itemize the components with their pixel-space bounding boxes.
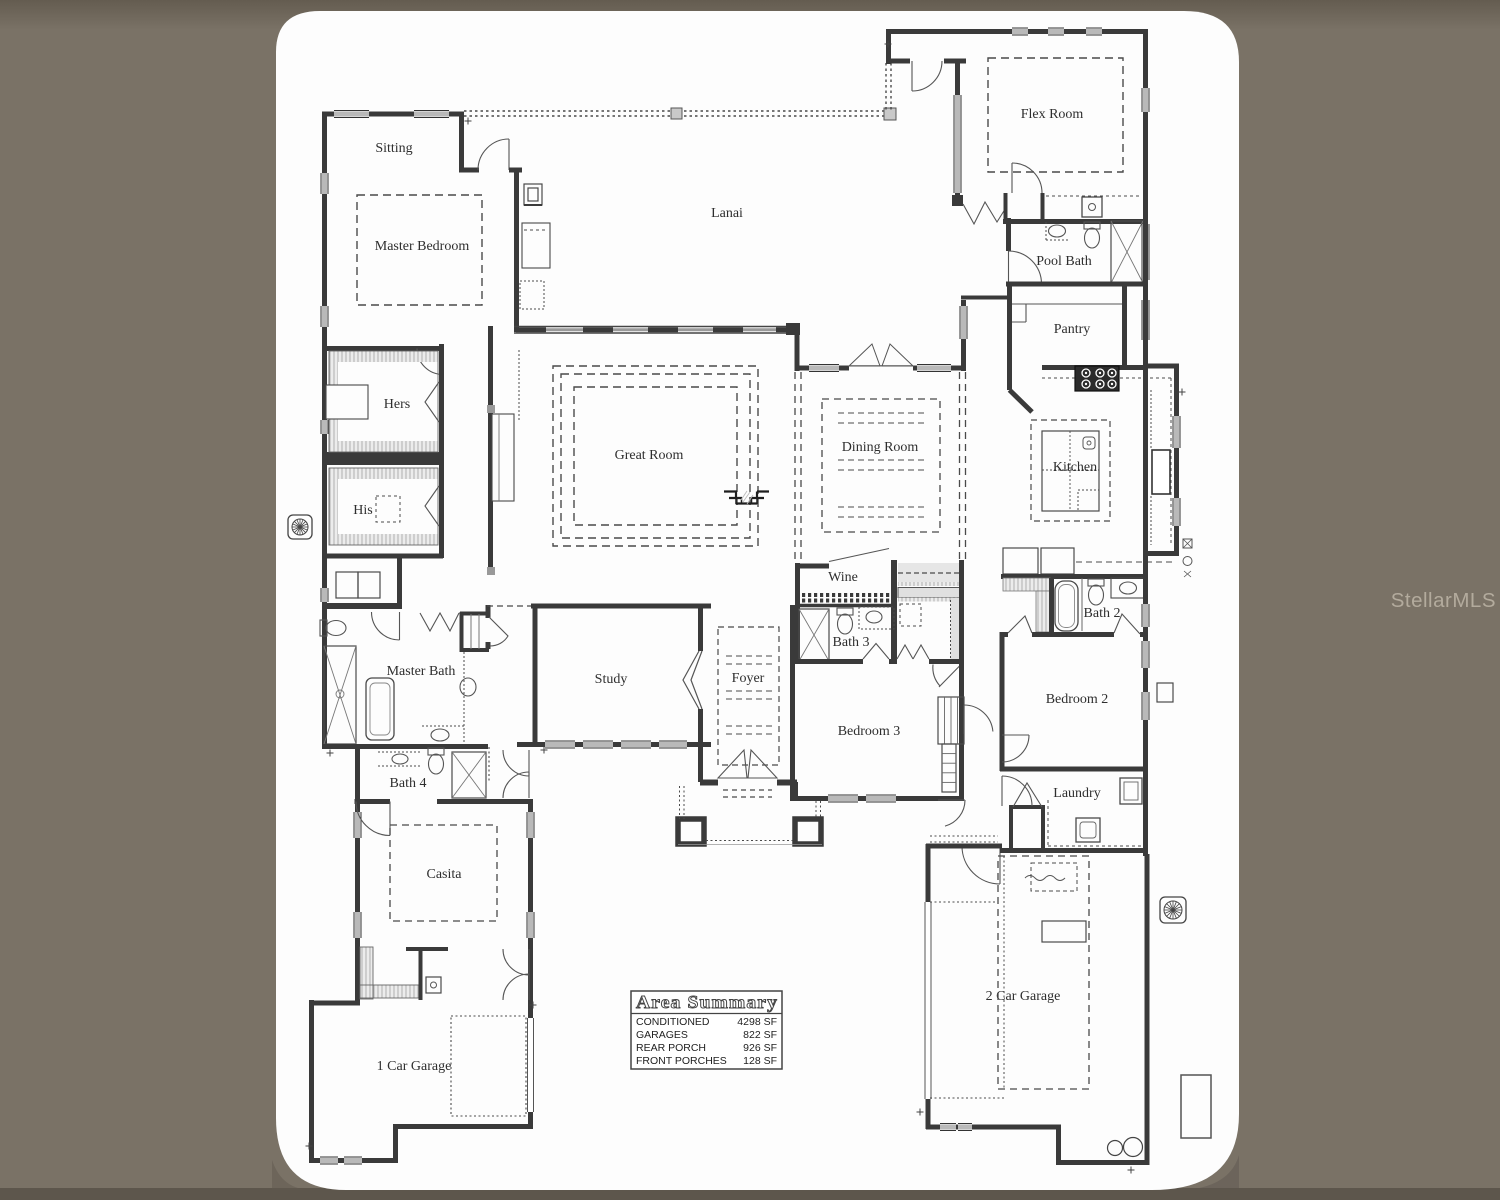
- svg-text:Bath 4: Bath 4: [390, 776, 427, 791]
- svg-text:StellarMLS: StellarMLS: [1391, 589, 1496, 612]
- svg-text:Foyer: Foyer: [732, 671, 765, 686]
- svg-text:Great Room: Great Room: [615, 448, 684, 463]
- svg-text:Area Summary: Area Summary: [636, 992, 778, 1012]
- svg-text:Bedroom 2: Bedroom 2: [1046, 692, 1109, 707]
- svg-text:Dining Room: Dining Room: [842, 440, 919, 455]
- svg-text:Sitting: Sitting: [375, 141, 412, 156]
- svg-text:Bedroom 3: Bedroom 3: [838, 724, 901, 739]
- svg-text:FRONT PORCHES: FRONT PORCHES: [636, 1055, 727, 1067]
- svg-text:Kitchen: Kitchen: [1053, 460, 1097, 475]
- svg-text:Master Bedroom: Master Bedroom: [375, 239, 470, 254]
- svg-text:Flex Room: Flex Room: [1021, 107, 1084, 122]
- svg-text:Casita: Casita: [427, 867, 463, 882]
- svg-text:Master Bath: Master Bath: [387, 664, 456, 679]
- svg-text:926 SF: 926 SF: [743, 1042, 777, 1054]
- svg-text:Wine: Wine: [828, 570, 858, 585]
- svg-text:Study: Study: [595, 672, 628, 687]
- svg-text:Lanai: Lanai: [711, 206, 743, 221]
- svg-text:Pantry: Pantry: [1054, 322, 1091, 337]
- svg-text:128 SF: 128 SF: [743, 1055, 777, 1067]
- svg-text:CONDITIONED: CONDITIONED: [636, 1016, 710, 1028]
- svg-text:Pool Bath: Pool Bath: [1036, 254, 1092, 269]
- svg-text:Bath 3: Bath 3: [833, 635, 870, 650]
- svg-text:REAR PORCH: REAR PORCH: [636, 1042, 706, 1054]
- svg-text:Bath 2: Bath 2: [1084, 606, 1121, 621]
- svg-text:Hers: Hers: [384, 397, 410, 412]
- svg-text:822 SF: 822 SF: [743, 1029, 777, 1041]
- svg-text:2 Car Garage: 2 Car Garage: [986, 989, 1061, 1004]
- svg-text:GARAGES: GARAGES: [636, 1029, 688, 1041]
- svg-text:His: His: [353, 503, 372, 518]
- svg-text:4298 SF: 4298 SF: [737, 1016, 777, 1028]
- svg-text:Laundry: Laundry: [1053, 786, 1100, 801]
- svg-text:1 Car Garage: 1 Car Garage: [377, 1059, 452, 1074]
